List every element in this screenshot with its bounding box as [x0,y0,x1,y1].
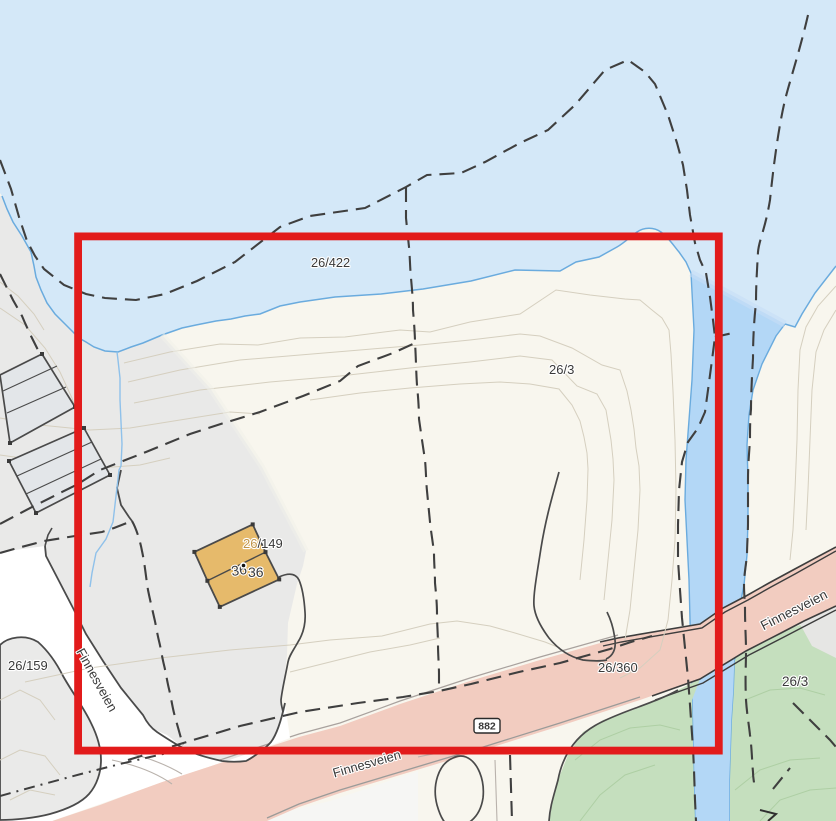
svg-text:36: 36 [248,564,264,580]
svg-text:26/360: 26/360 [598,660,638,675]
svg-text:26/149: 26/149 [243,536,283,551]
svg-text:26/3: 26/3 [549,362,574,377]
svg-text:26/3: 26/3 [782,674,808,689]
svg-text:882: 882 [478,721,496,733]
svg-text:26/422: 26/422 [311,255,350,270]
svg-text:26/159: 26/159 [8,658,48,673]
